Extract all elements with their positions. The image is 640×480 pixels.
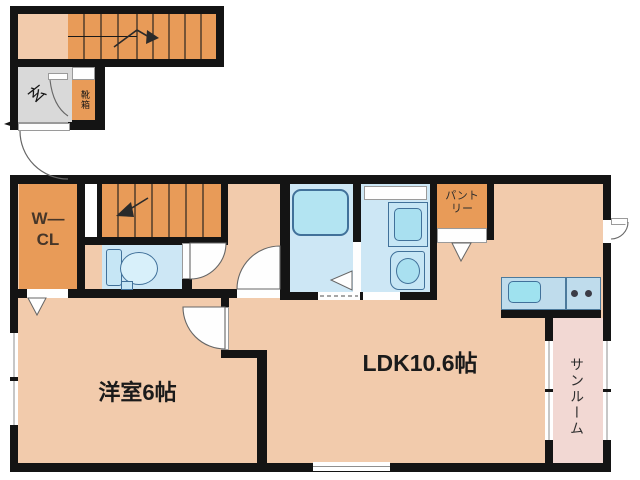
toilet-flush-icon — [121, 281, 133, 290]
wall-sunroom-west — [545, 310, 553, 472]
window-sunroom-west-1 — [545, 341, 553, 389]
western-room-door-leaf — [221, 307, 229, 350]
pantry-folding-door — [437, 228, 487, 243]
washroom-door-gap — [363, 292, 400, 300]
bathroom-door-gap — [353, 242, 361, 292]
sunroom-label: サンルーム — [569, 343, 587, 451]
wall-bathroom-west — [280, 184, 290, 300]
wall-under-stairs — [85, 237, 228, 245]
stair-landing-1f — [18, 14, 68, 59]
sliding-door — [318, 292, 360, 300]
ldk-entry-door-gap — [603, 220, 611, 243]
wcl-label-line1: W— — [31, 209, 64, 228]
hall-ldk-door-gap — [237, 289, 280, 298]
washbasin-bowl-icon — [396, 258, 420, 284]
staircase-1f — [68, 14, 216, 59]
kitchen-sink-icon — [508, 281, 541, 303]
wall-landing — [97, 184, 102, 237]
floorplan-canvas: 玄 靴箱 W—CL パントリー LDK10.6帖 洋室6帖 サンルーム — [0, 0, 640, 480]
wall-western-door-stub — [221, 292, 229, 307]
wall-stairs-hall — [221, 184, 228, 245]
western-room-label: 洋室6帖 — [55, 375, 220, 407]
wcl-door-gap — [27, 289, 68, 298]
genkan-inner-door-leaf — [48, 73, 68, 80]
stove-burner-icon-2 — [585, 290, 592, 297]
wall-washroom-east — [430, 184, 437, 300]
ldk-label: LDK10.6帖 — [330, 344, 510, 378]
stair-landing-2f — [85, 184, 97, 237]
washing-machine-drum-icon — [394, 208, 422, 241]
wcl-label-line2: CL — [37, 230, 60, 249]
wall-bath-wash-divider — [353, 184, 361, 242]
ldk-entry-door-leaf — [611, 218, 628, 225]
shoebox-label: 靴箱 — [75, 84, 92, 116]
toilet-door-leaf — [182, 243, 192, 279]
wcl-label: W—CL — [19, 208, 77, 250]
pantry-label-line2: リー — [451, 203, 473, 215]
window-western-west-1 — [10, 333, 18, 377]
bathtub-icon — [292, 189, 349, 236]
entrance-door-leaf — [18, 123, 70, 131]
wall-toilet-door-stub — [182, 279, 192, 292]
kitchen-counter-divider — [565, 278, 567, 309]
staircase-2f — [102, 184, 221, 237]
entrance-door-arc — [20, 131, 68, 179]
window-ldk-south — [313, 462, 390, 471]
wall-western-ldk-divider — [257, 358, 267, 472]
window-sunroom-east-1 — [603, 341, 611, 389]
washroom-cabinet — [364, 186, 427, 200]
wall-western-room-corner — [221, 350, 267, 358]
wall-wcl-east — [77, 184, 85, 292]
window-sunroom-east-2 — [603, 392, 611, 440]
stove-burner-icon-1 — [571, 290, 578, 297]
wall-pantry-east — [487, 184, 494, 240]
window-sunroom-west-2 — [545, 392, 553, 440]
pantry-label: パントリー — [437, 190, 487, 216]
pantry-label-line1: パント — [445, 190, 479, 202]
shoebox-door — [72, 67, 95, 80]
window-western-west-2 — [10, 381, 18, 425]
